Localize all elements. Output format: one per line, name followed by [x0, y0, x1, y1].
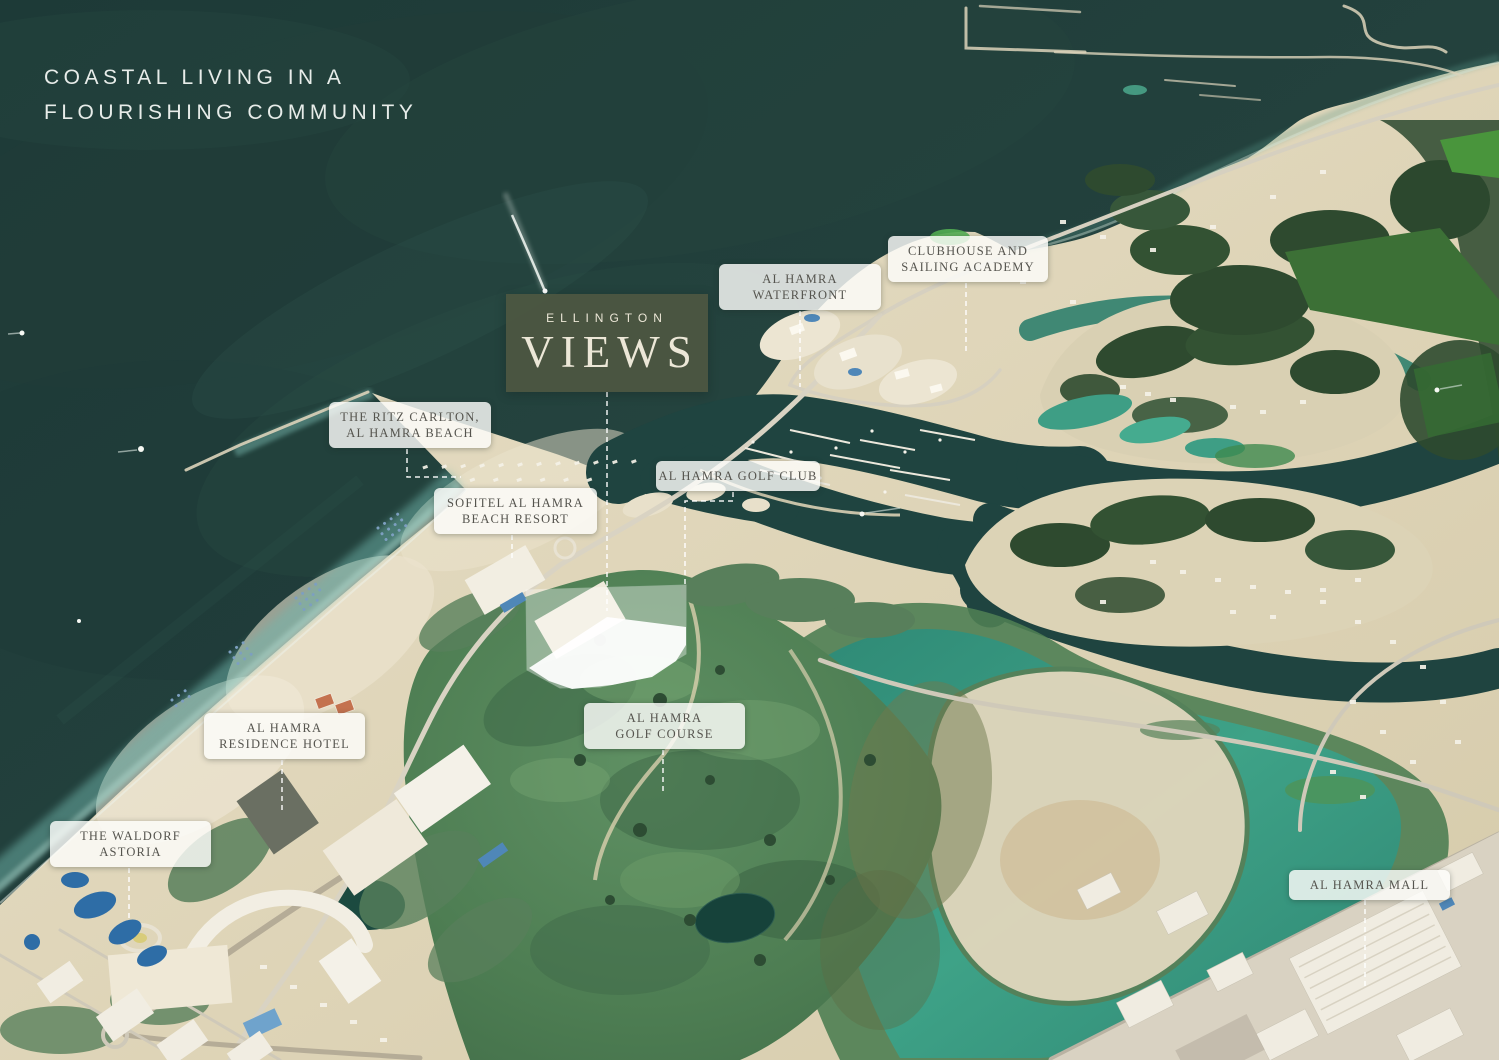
- logo-name-text: VIEWS: [521, 329, 698, 375]
- map-label-text: RESIDENCE HOTEL: [206, 736, 363, 752]
- headline-line-1: COASTAL LIVING IN A: [44, 60, 417, 95]
- brochure-map-page: COASTAL LIVING IN A FLOURISHING COMMUNIT…: [0, 0, 1499, 1060]
- map-label-text: AL HAMRA BEACH: [331, 425, 489, 441]
- map-label-ritz-carlton-al-hamra-beach: THE RITZ CARLTON,AL HAMRA BEACH: [329, 402, 491, 448]
- map-label-clubhouse-sailing-academy: CLUBHOUSE ANDSAILING ACADEMY: [888, 236, 1048, 282]
- map-label-text: WATERFRONT: [721, 287, 879, 303]
- map-label-al-hamra-waterfront: AL HAMRAWATERFRONT: [719, 264, 881, 310]
- map-label-text: AL HAMRA GOLF CLUB: [658, 468, 818, 484]
- map-label-al-hamra-golf-course: AL HAMRAGOLF COURSE: [584, 703, 745, 749]
- map-label-text: CLUBHOUSE AND: [890, 243, 1046, 259]
- headline-line-2: FLOURISHING COMMUNITY: [44, 95, 417, 130]
- sea-patch: [1123, 85, 1147, 95]
- map-label-text: GOLF COURSE: [586, 726, 743, 742]
- map-label-text: AL HAMRA MALL: [1291, 877, 1448, 893]
- map-label-al-hamra-residence-hotel: AL HAMRARESIDENCE HOTEL: [204, 713, 365, 759]
- map-label-sofitel-al-hamra-beach-resort: SOFITEL AL HAMRABEACH RESORT: [434, 488, 597, 534]
- map-label-text: THE RITZ CARLTON,: [331, 409, 489, 425]
- page-headline: COASTAL LIVING IN A FLOURISHING COMMUNIT…: [44, 60, 417, 130]
- map-label-text: SOFITEL AL HAMRA: [436, 495, 595, 511]
- ellington-views-logo: ELLINGTON VIEWS: [506, 294, 708, 392]
- aerial-map: [0, 0, 1499, 1060]
- map-label-text: ASTORIA: [52, 844, 209, 860]
- logo-brand-text: ELLINGTON: [546, 311, 668, 325]
- map-label-text: THE WALDORF: [52, 828, 209, 844]
- map-label-text: AL HAMRA: [206, 720, 363, 736]
- map-label-text: SAILING ACADEMY: [890, 259, 1046, 275]
- map-label-the-waldorf-astoria: THE WALDORFASTORIA: [50, 821, 211, 867]
- map-label-text: AL HAMRA: [586, 710, 743, 726]
- map-label-text: BEACH RESORT: [436, 511, 595, 527]
- map-label-al-hamra-mall: AL HAMRA MALL: [1289, 870, 1450, 900]
- map-label-al-hamra-golf-club: AL HAMRA GOLF CLUB: [656, 461, 820, 491]
- map-label-text: AL HAMRA: [721, 271, 879, 287]
